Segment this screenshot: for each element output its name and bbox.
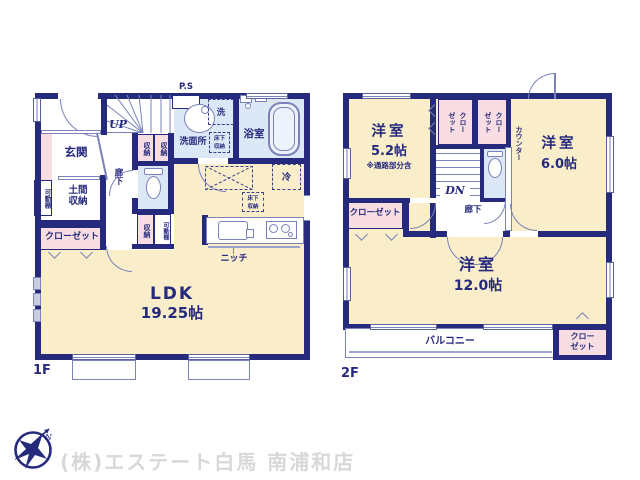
- wall: [403, 231, 612, 237]
- company-name: (株)エステート白馬 南浦和店: [60, 446, 355, 475]
- storage-label: 収納: [140, 137, 151, 161]
- balcony-rail-line: [349, 351, 552, 353]
- door-swing: [528, 73, 555, 99]
- washer-space: 洗: [208, 99, 234, 125]
- terrace-step: [188, 360, 250, 380]
- sliding-door: [58, 176, 100, 180]
- stove-burner: [269, 224, 278, 233]
- wall: [473, 99, 477, 145]
- wall: [304, 93, 310, 360]
- bathroom-label: 浴室: [238, 128, 270, 141]
- stairs-up-label: UP: [104, 118, 132, 131]
- movable-shelf-label: 可動棚: [36, 183, 50, 215]
- closet-2f-b-label: クロー ゼット: [480, 103, 504, 141]
- stove-burner: [288, 232, 293, 237]
- room-5-2-name: 洋室: [354, 124, 424, 141]
- doma-storage-label: 土間 収納: [54, 185, 102, 208]
- closet-2f-a-label: クロー ゼット: [444, 103, 468, 141]
- niche-label: ニッチ: [215, 254, 253, 265]
- ldk-size: 19.25帖: [92, 304, 252, 322]
- toilet-tank: [487, 151, 503, 157]
- floor-2f-label: 2F: [341, 366, 373, 382]
- company-logo: N: [11, 426, 57, 474]
- room-6-0-size: 6.0帖: [536, 157, 582, 173]
- fridge-space: 冷: [272, 164, 301, 190]
- wall: [132, 209, 174, 214]
- toilet-tank: [144, 168, 163, 175]
- bathtub: [268, 102, 300, 156]
- wall: [132, 244, 174, 249]
- closet-2f-left-label: クローゼット: [347, 208, 403, 218]
- room-5-2-size: 5.2帖: [354, 144, 424, 160]
- entrance-label: 玄関: [50, 146, 102, 160]
- floor-1f-label: 1F: [33, 363, 63, 379]
- bathtub-inner: [273, 107, 295, 151]
- storage-label: 収納: [140, 218, 151, 243]
- window: [362, 93, 411, 99]
- svg-text:N: N: [44, 433, 53, 442]
- door-opening: [304, 195, 310, 221]
- underfloor-storage: 床下 収納: [242, 192, 264, 212]
- balcony-label: バルコニー: [418, 336, 482, 348]
- toilet-bowl: [488, 158, 502, 178]
- wall: [35, 220, 106, 227]
- room-12-0-size: 12.0帖: [440, 278, 516, 295]
- counter-strip: [505, 147, 512, 231]
- washroom-label: 洗面所: [175, 137, 211, 148]
- window: [343, 267, 351, 301]
- room-6-0-name: 洋室: [536, 136, 582, 153]
- room-5-2-note: ※通路部分含: [346, 161, 432, 170]
- wall: [507, 93, 511, 147]
- wall: [480, 147, 484, 200]
- window: [246, 93, 288, 99]
- movable-shelf-label: 可動棚: [156, 217, 169, 244]
- pipe-space-label: P.S: [170, 82, 202, 92]
- wall: [430, 145, 511, 149]
- stairs-down-label: DN: [440, 184, 470, 197]
- window: [343, 148, 351, 179]
- kitchen-sink: [218, 221, 248, 240]
- window: [33, 277, 41, 290]
- terrace-step: [72, 360, 136, 380]
- door-opening: [510, 231, 538, 237]
- window: [33, 293, 41, 306]
- window: [33, 98, 41, 122]
- wall: [168, 133, 174, 213]
- underfloor-storage: 床下 収納: [209, 132, 230, 153]
- counter-label: カウンター: [512, 118, 523, 168]
- ldk-name: LDK: [92, 284, 252, 304]
- sliding-door: [41, 130, 101, 134]
- storage-label: 収納: [157, 137, 168, 161]
- window: [606, 262, 614, 298]
- window: [33, 309, 41, 322]
- floor-plan-image: P.S UP 玄関 土間 収納 可動棚 クローゼット 収納 収納 収納 可動棚: [0, 0, 640, 480]
- window: [606, 136, 614, 193]
- closet-1f-label: クローゼット: [38, 232, 106, 243]
- door-leaf: [554, 73, 556, 99]
- toilet-bowl: [146, 176, 161, 199]
- room-12-0-name: 洋室: [442, 255, 514, 274]
- window: [483, 324, 553, 330]
- wall: [138, 162, 174, 166]
- shower-drain: [245, 103, 251, 109]
- window: [370, 324, 437, 330]
- cupboard-space: [205, 166, 253, 190]
- closet-2f-br-label: クロー ゼット: [559, 332, 606, 351]
- faucet: [246, 229, 254, 238]
- hallway-2f-label: 廊下: [453, 205, 493, 215]
- niche-shelf: [208, 246, 300, 248]
